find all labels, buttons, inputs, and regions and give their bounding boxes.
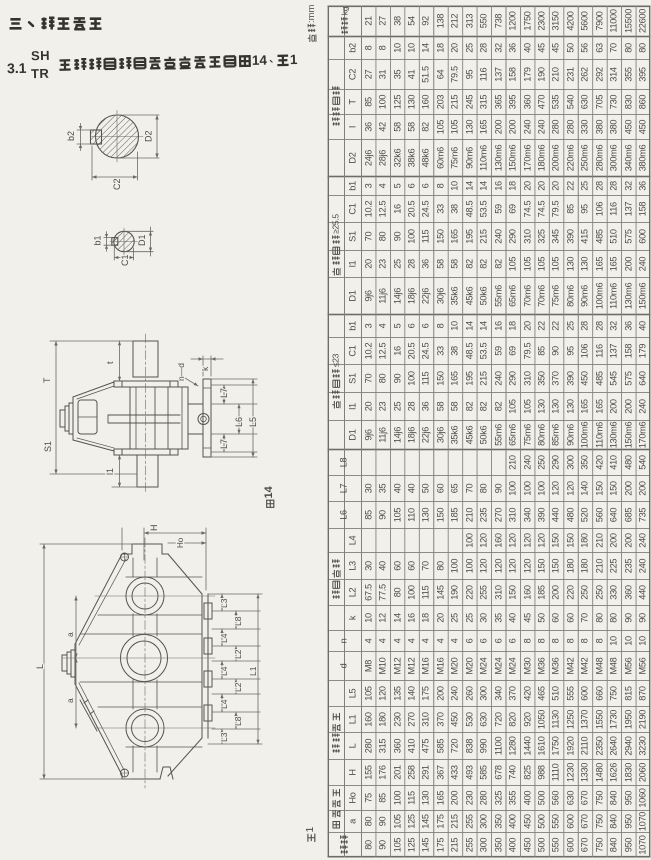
svg-text:Ho: Ho: [176, 537, 185, 548]
svg-text:L4: L4: [219, 666, 229, 676]
svg-text:L1: L1: [248, 666, 258, 676]
svg-text:L3: L3: [219, 598, 229, 608]
svg-text:a: a: [65, 698, 75, 703]
svg-text:C1: C1: [120, 254, 130, 266]
svg-text:H: H: [149, 525, 159, 532]
svg-text:L: L: [35, 664, 45, 669]
svg-text:D2: D2: [144, 130, 154, 142]
svg-text:T: T: [42, 377, 52, 383]
svg-text:b1: b1: [93, 235, 103, 245]
svg-text:l1: l1: [105, 468, 115, 475]
svg-text:L8: L8: [233, 616, 243, 626]
svg-text:L3: L3: [219, 732, 229, 742]
svg-text:L4: L4: [219, 699, 229, 709]
svg-text:b2: b2: [66, 131, 76, 141]
svg-text:L2: L2: [233, 682, 243, 692]
svg-text:L5: L5: [248, 417, 258, 427]
svg-text:t: t: [105, 361, 115, 364]
svg-text:L7: L7: [219, 439, 229, 449]
svg-text:L6: L6: [234, 417, 244, 427]
svg-text:L7: L7: [219, 388, 229, 398]
svg-text:D1: D1: [137, 234, 147, 246]
svg-text:L2: L2: [233, 649, 243, 659]
svg-text:a: a: [65, 632, 75, 637]
svg-text:k: k: [200, 366, 210, 371]
svg-text:C2: C2: [112, 178, 122, 190]
svg-text:S1: S1: [43, 441, 53, 452]
svg-text:n—d: n—d: [176, 363, 186, 381]
svg-text:L8: L8: [233, 716, 243, 726]
svg-text:L4: L4: [219, 633, 229, 643]
